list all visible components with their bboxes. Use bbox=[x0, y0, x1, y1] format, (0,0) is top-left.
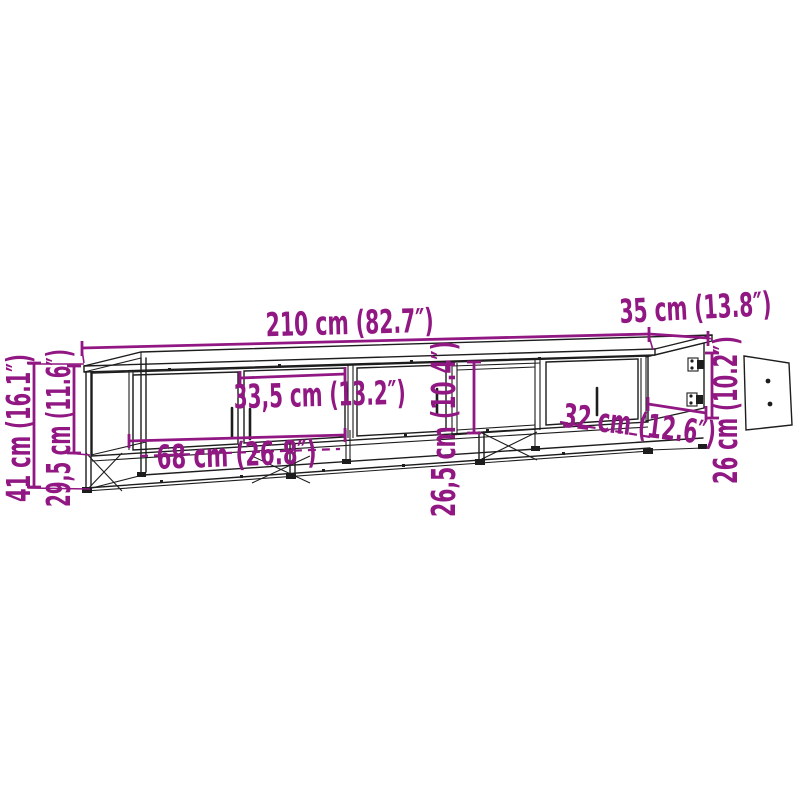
dim-inner-height-middle-label: 26,5 cm (10.4″) bbox=[424, 341, 463, 517]
dim-inner-height-right-label: 26 cm (10.2″) bbox=[706, 336, 745, 484]
dim-compartment-width-label: 68 cm (26.8″) bbox=[156, 432, 317, 477]
dim-open-section-width: 32 cm (12.6″) bbox=[560, 396, 718, 453]
dimension-diagram: 210 cm (82.7″) 35 cm (13.8″) 41 cm (16.1… bbox=[0, 0, 800, 800]
dim-overall-height-label: 41 cm (16.1″) bbox=[0, 354, 38, 502]
dim-door-width: 33,5 cm (13.2″) bbox=[233, 367, 406, 416]
dim-compartment-width: 68 cm (26.8″) bbox=[129, 428, 345, 477]
dim-open-section-width-label: 32 cm (12.6″) bbox=[561, 396, 719, 453]
dim-door-width-label: 33,5 cm (13.2″) bbox=[233, 373, 406, 416]
hinge-hole bbox=[766, 379, 771, 384]
hinge-hole bbox=[768, 402, 773, 407]
dim-cabinet-height-label: 29,5 cm (11.6″) bbox=[39, 349, 78, 507]
hinge-icon bbox=[688, 358, 704, 371]
hinge-icon bbox=[687, 393, 703, 406]
dim-overall-width-label: 210 cm (82.7″) bbox=[265, 301, 434, 344]
diagram-canvas: 210 cm (82.7″) 35 cm (13.8″) 41 cm (16.1… bbox=[0, 0, 800, 800]
dim-depth-label: 35 cm (13.8″) bbox=[618, 284, 772, 331]
dim-overall-width: 210 cm (82.7″) bbox=[82, 301, 653, 363]
detached-door-panel bbox=[744, 356, 792, 430]
open-shelf-middle bbox=[452, 363, 540, 435]
dim-cabinet-height: 29,5 cm (11.6″) bbox=[39, 349, 90, 507]
dim-inner-height-right: 26 cm (10.2″) bbox=[705, 336, 745, 484]
